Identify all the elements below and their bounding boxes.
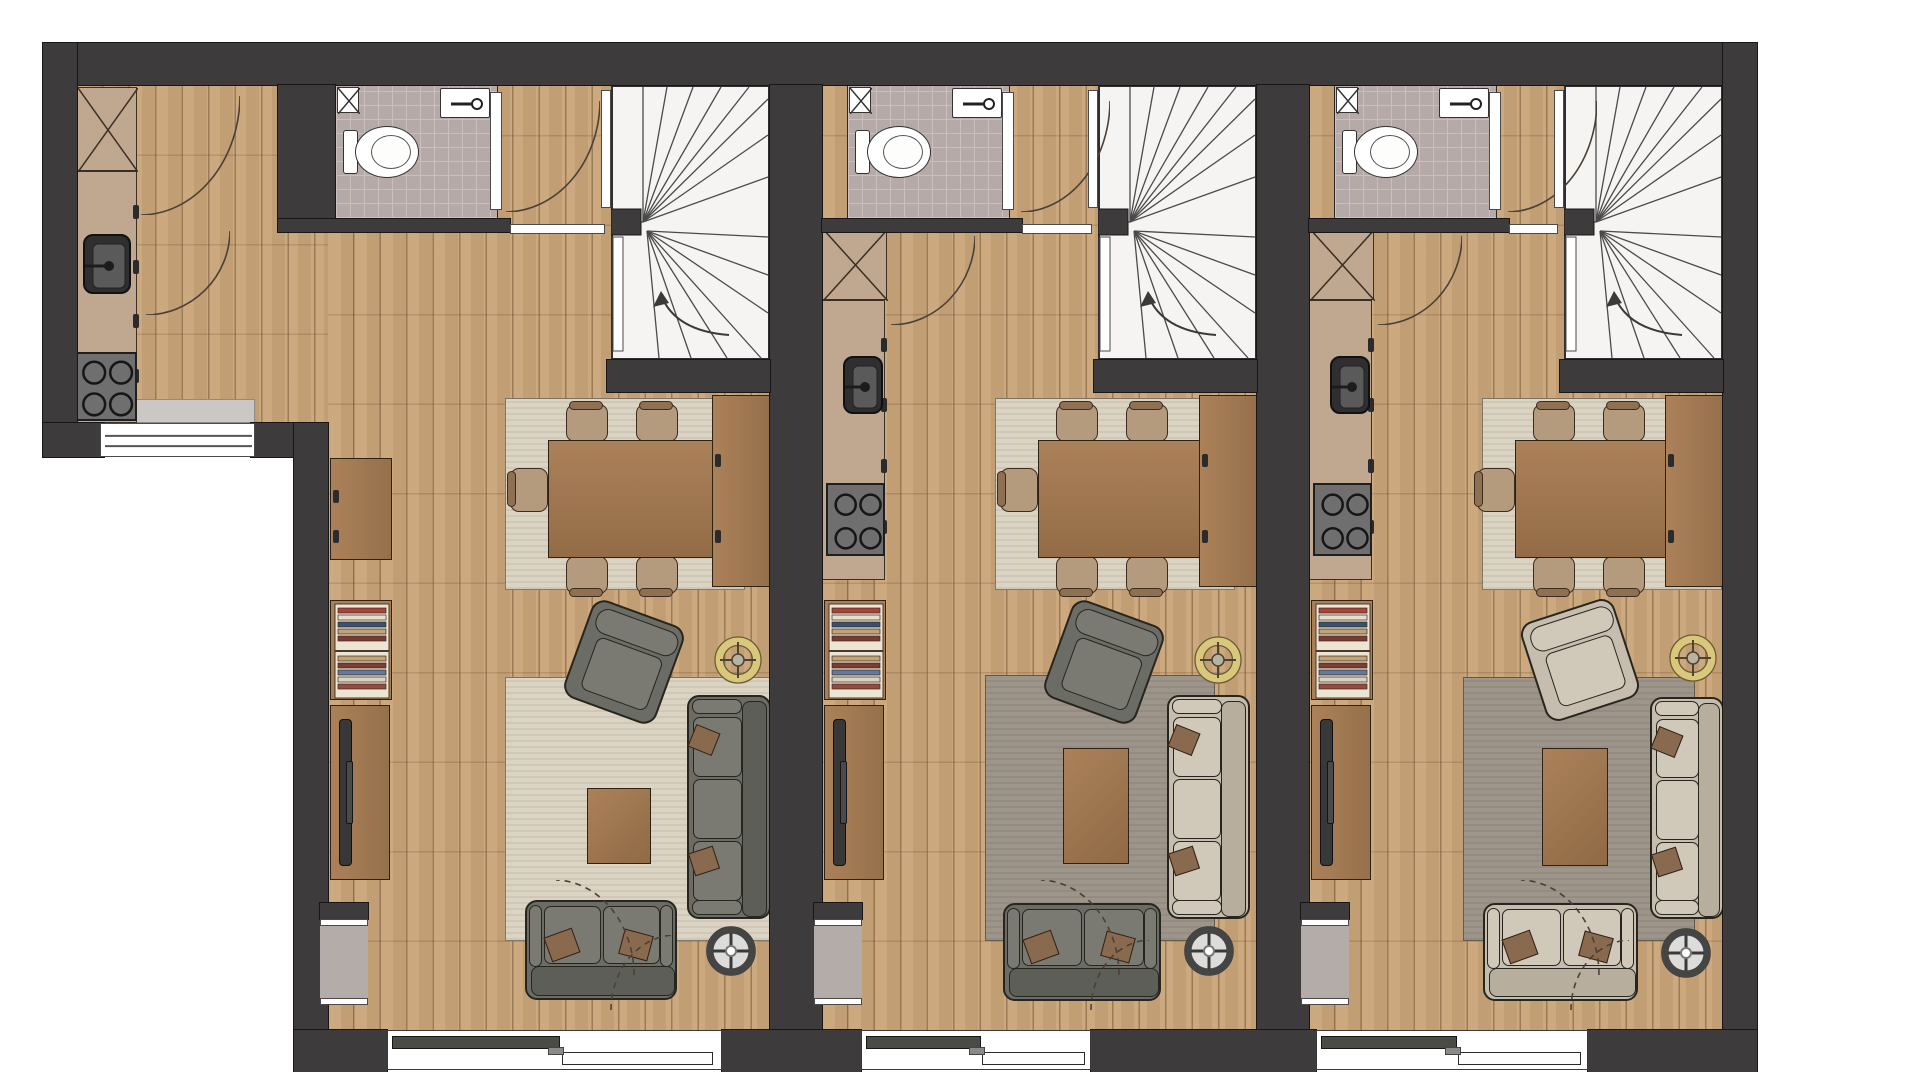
unit-1-wall-niche	[320, 919, 368, 1005]
unit-1-entry-door	[601, 90, 611, 208]
unit-3-bathroom-door-arc	[1507, 100, 1597, 212]
unit-1-round-speaker	[705, 925, 757, 977]
bottom-wall-pier-3	[1091, 1030, 1316, 1072]
unit-1-sliding-door	[387, 1030, 722, 1070]
unit-2-hall-threshold	[1022, 224, 1092, 234]
unit-2-sofa	[1167, 695, 1250, 919]
basin-faucet-icon	[953, 89, 1003, 119]
bottom-wall-pier-1	[294, 1030, 387, 1072]
unit-3-stove	[1313, 483, 1372, 556]
unit-2-dining-chair	[1126, 556, 1168, 594]
sofa-backrest	[742, 701, 767, 917]
door-swing-arc-icon	[1090, 940, 1150, 1010]
door-swing-arc-icon	[1507, 100, 1597, 212]
cabinet-handle	[1202, 454, 1208, 467]
unit-2-kitchen-arc	[890, 235, 975, 325]
unit-3-bathroom-door	[1489, 92, 1501, 210]
unit-2-bathroom-bottom-wall	[822, 219, 1022, 232]
unit-2-bookshelf	[824, 600, 886, 700]
unit-2-staircase	[1098, 85, 1257, 360]
sofa-cushion	[693, 779, 742, 839]
sliding-door-handle	[548, 1047, 564, 1055]
unit-1-bathroom-door-arc	[505, 100, 600, 212]
unit-2-bathroom-shaft-box	[849, 87, 871, 113]
hob-burners-icon	[1315, 485, 1374, 558]
cabinet-handle	[881, 338, 887, 352]
cabinet-handle	[1202, 530, 1208, 543]
cabinet-handle	[1368, 338, 1374, 352]
sliding-door-handle	[1445, 1047, 1461, 1055]
unit-2-bathroom-basin	[952, 88, 1002, 118]
unit-1-door-swing-arc	[145, 230, 230, 315]
party-wall-1	[770, 85, 822, 1030]
sofa-backrest	[1698, 703, 1720, 917]
unit-1-dining-sideboard	[712, 395, 770, 587]
unit-2-dining-table	[1038, 440, 1206, 558]
unit-1-door-swing-arc	[140, 95, 240, 215]
ring-lamp-icon	[1669, 634, 1717, 682]
door-swing-arc-icon	[890, 235, 975, 325]
unit-3-stair-bottom-wall	[1560, 360, 1723, 392]
cabinet-handle	[133, 314, 139, 328]
outer-wall-right	[1723, 43, 1757, 1072]
kitchen-sink-basin-icon	[85, 236, 133, 296]
cabinet-x-icon	[1310, 229, 1375, 301]
unit-1-bathroom-left-wall	[278, 85, 335, 232]
unit-1-sofa	[687, 695, 771, 919]
shaft-x-icon	[1337, 88, 1359, 114]
floor-plan-canvas	[0, 0, 1920, 1072]
sofa-armrest	[529, 905, 542, 967]
unit-2-kitchen-sink	[843, 356, 883, 414]
sofa-armrest	[692, 699, 742, 714]
chair-backrest	[1536, 588, 1570, 597]
sofa-armrest	[1007, 908, 1020, 969]
chair-backrest	[1606, 588, 1640, 597]
unit-3-kitchen-arc	[1377, 235, 1462, 325]
sliding-door-leaf	[1458, 1052, 1580, 1065]
door-swing-arc-icon	[1570, 940, 1630, 1010]
chair-backrest	[639, 401, 673, 410]
cabinet-x-icon	[78, 88, 138, 172]
unit-2-dining-chair	[1000, 468, 1038, 512]
sliding-door-leaf	[1321, 1036, 1457, 1049]
unit-3-dining-sideboard	[1665, 395, 1723, 587]
books-icon	[331, 601, 393, 701]
unit-1-hall-threshold	[510, 224, 605, 234]
cabinet-handle	[881, 459, 887, 473]
outer-wall-left	[43, 43, 77, 457]
cabinet-handle	[1668, 530, 1674, 543]
sliding-door-leaf	[866, 1036, 981, 1049]
unit-1-tv-board-tv-stand	[346, 761, 353, 824]
unit-2-dining-chair	[1056, 556, 1098, 594]
unit-3-bathroom-toilet-seat	[1370, 135, 1410, 169]
unit-1-bathroom-basin	[440, 88, 490, 118]
unit-2-stair-bottom-wall	[1094, 360, 1257, 392]
unit-1-dining-chair	[566, 556, 608, 594]
unit-3-bathroom-basin	[1439, 88, 1489, 118]
cabinet-handle	[1668, 454, 1674, 467]
unit-3-kitchen-sink	[1330, 356, 1370, 414]
hob-burners-icon	[828, 485, 887, 558]
chair-backrest	[1129, 588, 1163, 597]
unit-2-dining-chair	[1126, 404, 1168, 442]
cabinet-handle	[715, 454, 721, 467]
unit-1-dining-chair	[510, 468, 548, 512]
unit-1-kitchen-sink	[83, 234, 131, 294]
unit-2-niche-stub	[814, 903, 862, 919]
sliding-door-leaf	[982, 1052, 1086, 1065]
ring-lamp-icon	[1194, 636, 1242, 684]
unit-3-sofa	[1650, 697, 1724, 919]
basin-faucet-icon	[1440, 89, 1490, 119]
stair-treads-icon	[1098, 85, 1257, 360]
sofa-armrest	[692, 900, 742, 915]
round-speaker-icon	[705, 925, 757, 977]
unit-1-wall-cabinet	[330, 458, 392, 560]
unit-3-round-speaker	[1660, 927, 1712, 979]
unit-3-floor-arc	[1570, 940, 1630, 1010]
niche-jamb	[814, 919, 862, 926]
chair-backrest	[639, 588, 673, 597]
outer-wall-top	[43, 43, 1757, 85]
cabinet-handle	[133, 205, 139, 219]
unit-2-bathroom-toilet-seat	[883, 135, 923, 169]
unit-1-staircase	[611, 85, 770, 360]
unit-1-stair-bottom-wall	[607, 360, 770, 392]
door-swing-arc-icon	[140, 95, 240, 215]
shaft-x-icon	[338, 88, 360, 114]
unit-1-bathroom-shaft-box	[337, 87, 359, 113]
sofa-armrest	[1487, 908, 1500, 969]
door-swing-arc-icon	[505, 100, 600, 212]
chair-backrest	[997, 471, 1006, 507]
unit-1-dining-chair	[636, 404, 678, 442]
unit-3-bookshelf	[1311, 600, 1373, 700]
unit-1-stove	[73, 352, 137, 421]
unit-2-entry-door	[1088, 90, 1098, 208]
unit-3-dining-chair	[1533, 556, 1575, 594]
unit-2-floor-arc	[1090, 940, 1150, 1010]
niche-jamb	[1301, 919, 1349, 926]
unit-2-round-speaker	[1183, 925, 1235, 977]
unit-1-bathroom-door	[490, 92, 502, 210]
unit-3-bathroom-shaft-box	[1336, 87, 1358, 113]
unit-2-dining-sideboard	[1199, 395, 1257, 587]
cabinet-handle	[1368, 459, 1374, 473]
party-wall-2	[1257, 85, 1309, 1030]
books-icon	[825, 601, 887, 701]
unit-2-stove	[826, 483, 885, 556]
unit-3-wall-niche	[1301, 919, 1349, 1005]
bottom-wall-pier-4	[1588, 1030, 1757, 1072]
chair-backrest	[569, 588, 603, 597]
unit-2-tv-board-tv-stand	[840, 761, 847, 824]
chair-backrest	[1059, 588, 1093, 597]
chair-backrest	[1129, 401, 1163, 410]
unit-3-kitchen-tall-cabinet	[1309, 228, 1374, 300]
unit-1-bookshelf	[330, 600, 392, 700]
unit-1-kitchen-tall-cabinet	[77, 87, 137, 171]
unit-1-niche-stub	[320, 903, 368, 919]
sofa-armrest	[1172, 699, 1222, 714]
unit-3-niche-stub	[1301, 903, 1349, 919]
cabinet-handle	[333, 490, 339, 503]
niche-jamb	[814, 998, 862, 1005]
niche-jamb	[320, 998, 368, 1005]
unit-2-coffee-table	[1063, 748, 1129, 864]
sliding-door-handle	[969, 1047, 985, 1055]
unit-2-wall-niche	[814, 919, 862, 1005]
unit-3-dining-chair	[1603, 404, 1645, 442]
unit-2-kitchen-tall-cabinet	[822, 228, 887, 300]
sliding-door-leaf	[392, 1036, 560, 1049]
bottom-wall-pier-2	[722, 1030, 861, 1072]
chair-backrest	[1474, 471, 1483, 507]
unit-3-bathroom-bottom-wall	[1309, 219, 1509, 232]
unit-1-floor-arc	[610, 935, 675, 1010]
unit-1-dining-chair	[566, 404, 608, 442]
extension-window	[100, 423, 255, 457]
basin-faucet-icon	[441, 89, 491, 119]
unit-3-ring-lamp	[1669, 634, 1717, 682]
niche-jamb	[1301, 998, 1349, 1005]
door-swing-arc-icon	[610, 935, 675, 1010]
unit-1-bathroom-bottom-wall	[278, 219, 510, 232]
chair-backrest	[569, 401, 603, 410]
unit-3-dining-chair	[1603, 556, 1645, 594]
sliding-door-leaf	[562, 1052, 713, 1065]
chair-backrest	[507, 471, 516, 507]
chair-backrest	[1536, 401, 1570, 410]
stair-treads-icon	[611, 85, 770, 360]
kitchen-sink-basin-icon	[1332, 358, 1372, 416]
unit-2-dining-chair	[1056, 404, 1098, 442]
shaft-x-icon	[850, 88, 872, 114]
books-icon	[1312, 601, 1374, 701]
niche-jamb	[320, 919, 368, 926]
unit-3-dining-table	[1515, 440, 1683, 558]
sofa-armrest	[1655, 900, 1699, 915]
sofa-cushion	[1656, 780, 1699, 839]
sofa-backrest	[1221, 701, 1246, 917]
cabinet-handle	[133, 260, 139, 274]
unit-2-sliding-door	[861, 1030, 1091, 1070]
cabinet-handle	[715, 530, 721, 543]
unit-1-dining-table	[548, 440, 716, 558]
unit-1-dining-chair	[636, 556, 678, 594]
hob-burners-icon	[75, 354, 139, 423]
round-speaker-icon	[1183, 925, 1235, 977]
door-swing-arc-icon	[145, 230, 230, 315]
door-swing-arc-icon	[1377, 235, 1462, 325]
round-speaker-icon	[1660, 927, 1712, 979]
kitchen-sink-basin-icon	[845, 358, 885, 416]
sofa-armrest	[1172, 900, 1222, 915]
sofa-armrest	[1655, 701, 1699, 716]
window-glass-lines	[101, 424, 256, 458]
unit-2-ring-lamp	[1194, 636, 1242, 684]
unit-2-bathroom-door	[1002, 92, 1014, 210]
unit-1-bathroom-toilet-seat	[371, 135, 411, 169]
extension-bottom-wall-left	[43, 423, 104, 457]
unit-3-dining-chair	[1477, 468, 1515, 512]
chair-backrest	[1059, 401, 1093, 410]
unit-1-ring-lamp	[714, 636, 762, 684]
unit-3-entry-door	[1554, 90, 1564, 208]
unit-3-coffee-table	[1542, 748, 1608, 866]
unit-3-hall-threshold	[1509, 224, 1558, 234]
ring-lamp-icon	[714, 636, 762, 684]
sofa-cushion	[1173, 779, 1221, 839]
cabinet-handle	[333, 530, 339, 543]
cabinet-x-icon	[823, 229, 888, 301]
unit-3-sliding-door	[1316, 1030, 1588, 1070]
chair-backrest	[1606, 401, 1640, 410]
unit-1-coffee-table	[587, 788, 651, 864]
unit-3-dining-chair	[1533, 404, 1575, 442]
unit-3-tv-board-tv-stand	[1327, 761, 1334, 824]
